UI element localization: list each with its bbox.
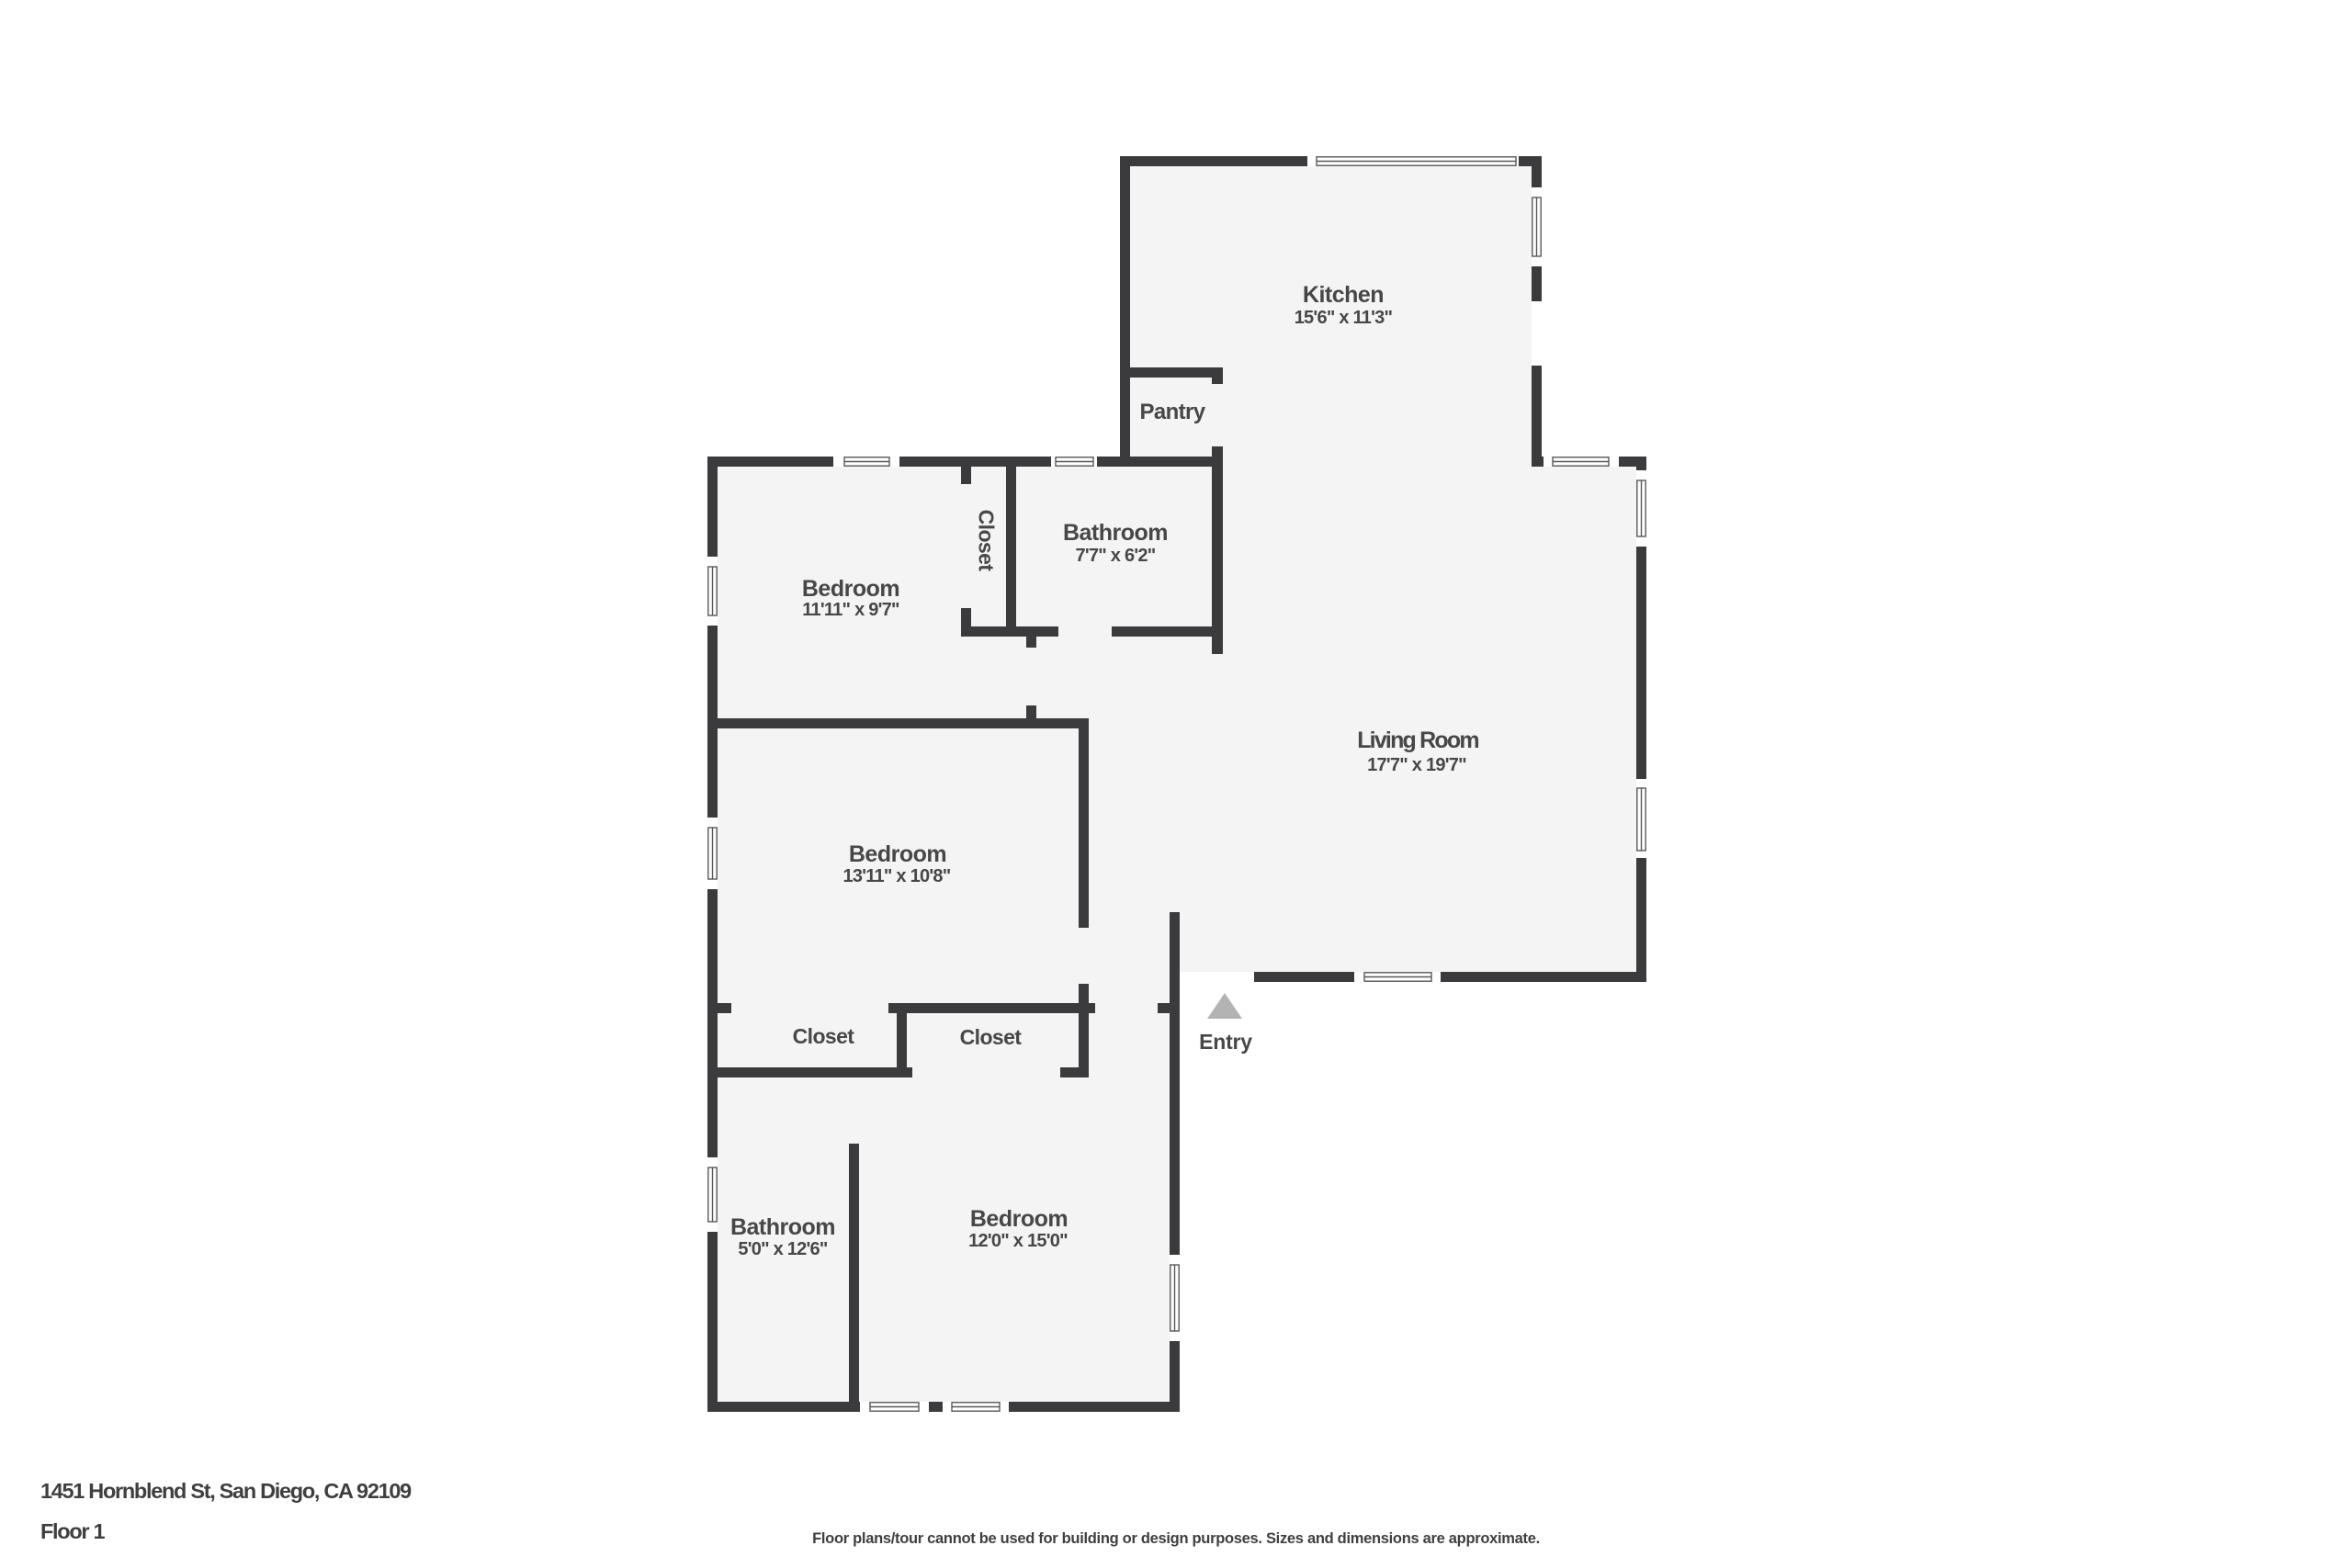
svg-text:Closet: Closet (960, 1025, 1023, 1049)
svg-text:5'0" x 12'6": 5'0" x 12'6" (738, 1239, 828, 1259)
svg-text:Floor 1: Floor 1 (40, 1519, 105, 1543)
svg-text:Bedroom: Bedroom (970, 1206, 1068, 1232)
svg-text:Kitchen: Kitchen (1303, 282, 1384, 308)
svg-text:Pantry: Pantry (1139, 400, 1205, 424)
svg-text:Bathroom: Bathroom (730, 1214, 835, 1240)
svg-text:7'7" x 6'2": 7'7" x 6'2" (1076, 546, 1156, 566)
svg-text:11'11" x 9'7": 11'11" x 9'7" (802, 600, 899, 620)
svg-text:13'11" x 10'8": 13'11" x 10'8" (843, 866, 951, 886)
svg-text:Closet: Closet (975, 510, 999, 572)
svg-text:12'0" x 15'0": 12'0" x 15'0" (968, 1231, 1068, 1251)
svg-text:15'6" x 11'3": 15'6" x 11'3" (1295, 308, 1393, 328)
svg-text:17'7" x 19'7": 17'7" x 19'7" (1367, 755, 1466, 775)
svg-text:Floor plans/tour cannot be use: Floor plans/tour cannot be used for buil… (812, 1530, 1540, 1547)
svg-text:Closet: Closet (793, 1024, 855, 1048)
svg-text:Bedroom: Bedroom (849, 841, 946, 867)
svg-text:Bedroom: Bedroom (802, 576, 899, 602)
svg-text:Bathroom: Bathroom (1063, 520, 1168, 546)
svg-text:1451 Hornblend St, San Diego,: 1451 Hornblend St, San Diego, CA 92109 (40, 1479, 412, 1503)
svg-text:Entry: Entry (1199, 1030, 1252, 1054)
svg-text:Living Room: Living Room (1357, 728, 1478, 753)
